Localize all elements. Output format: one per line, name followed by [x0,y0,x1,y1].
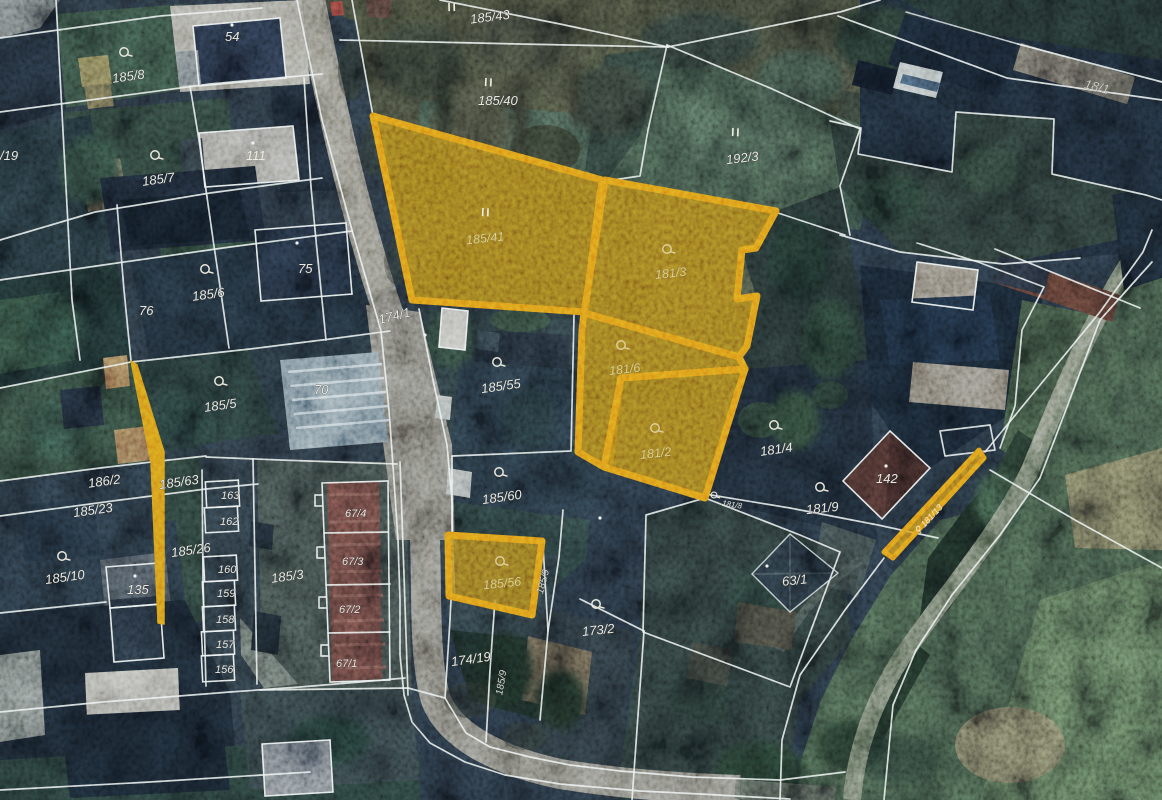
svg-text:67/4: 67/4 [345,508,366,520]
svg-text:142: 142 [876,471,898,486]
svg-text:111: 111 [246,148,266,163]
svg-text:75: 75 [298,261,313,276]
svg-text:/19: /19 [0,148,18,163]
svg-text:158: 158 [216,614,235,626]
svg-text:67/2: 67/2 [339,604,360,616]
svg-text:157: 157 [216,639,235,651]
svg-text:135: 135 [127,582,149,597]
svg-text:67/3: 67/3 [342,556,364,568]
svg-text:160: 160 [218,564,237,576]
svg-text:163: 163 [221,490,240,502]
svg-text:67/1: 67/1 [336,658,357,670]
svg-text:63/1: 63/1 [781,571,808,589]
svg-text:159: 159 [217,588,235,600]
svg-text:185/40: 185/40 [478,93,519,108]
svg-text:54: 54 [225,29,239,44]
svg-text:162: 162 [220,516,238,528]
svg-text:70: 70 [314,382,329,397]
svg-text:156: 156 [215,664,234,676]
svg-text:76: 76 [139,303,154,318]
